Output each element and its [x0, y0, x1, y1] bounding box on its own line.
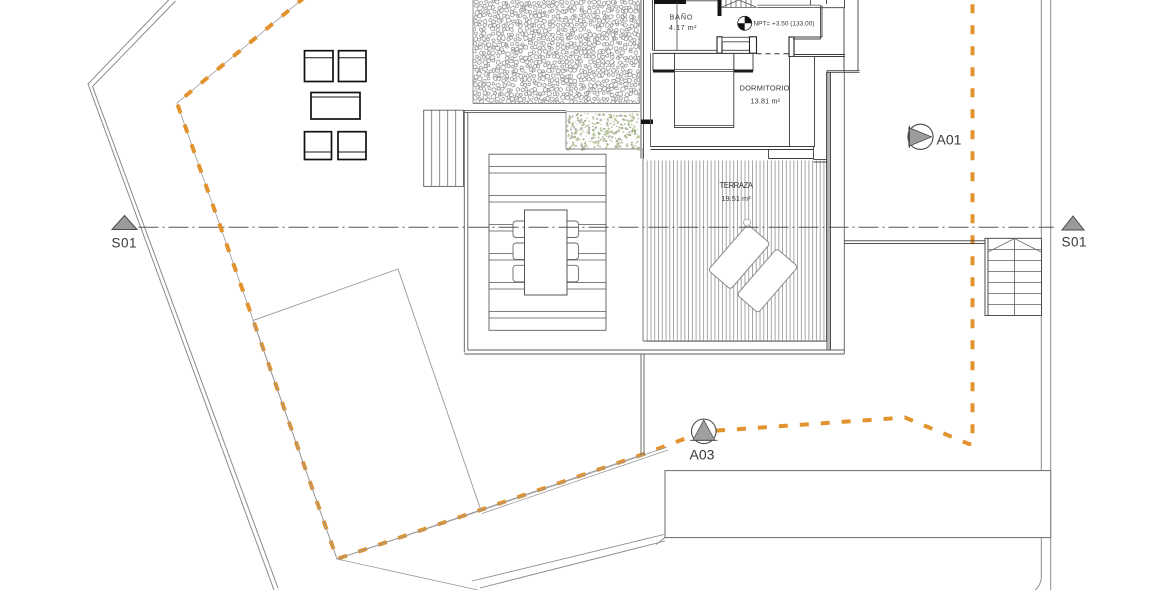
svg-text:A01: A01 — [937, 132, 962, 148]
svg-text:4.17 m²: 4.17 m² — [669, 25, 697, 32]
svg-text:13.81 m²: 13.81 m² — [751, 96, 781, 105]
svg-text:DORMITORIO: DORMITORIO — [740, 84, 790, 93]
svg-text:A03: A03 — [690, 447, 715, 463]
svg-text:S01: S01 — [112, 236, 138, 251]
svg-text:19.51 m²: 19.51 m² — [722, 194, 752, 203]
svg-text:BAÑO: BAÑO — [670, 12, 693, 21]
svg-text:TERRAZA: TERRAZA — [720, 181, 754, 190]
svg-text:S01: S01 — [1062, 235, 1088, 250]
svg-text:NPT= +3.50 (133.00): NPT= +3.50 (133.00) — [754, 20, 815, 27]
